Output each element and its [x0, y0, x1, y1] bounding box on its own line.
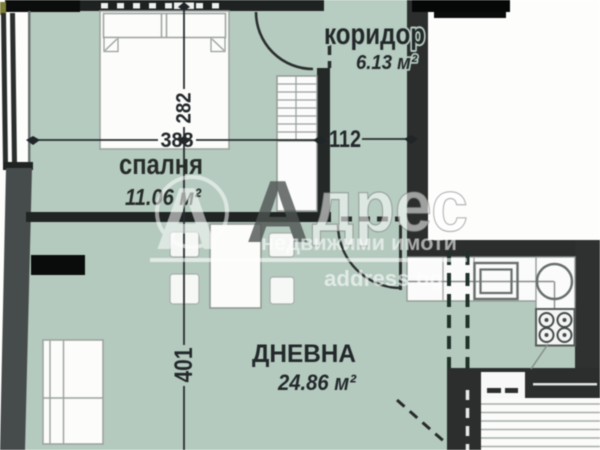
- svg-text:А: А: [155, 169, 219, 268]
- svg-text:коридор: коридор: [324, 18, 425, 51]
- svg-text:6.13 м²: 6.13 м²: [356, 52, 418, 74]
- svg-text:24.86 м²: 24.86 м²: [277, 370, 357, 395]
- svg-text:address.bg: address.bg: [324, 266, 443, 291]
- svg-text:недвижими имоти: недвижими имоти: [261, 232, 457, 255]
- svg-text:112: 112: [329, 126, 361, 153]
- svg-text:282: 282: [173, 93, 196, 124]
- svg-text:ДНЕВНА: ДНЕВНА: [252, 340, 356, 368]
- svg-text:401: 401: [170, 347, 198, 382]
